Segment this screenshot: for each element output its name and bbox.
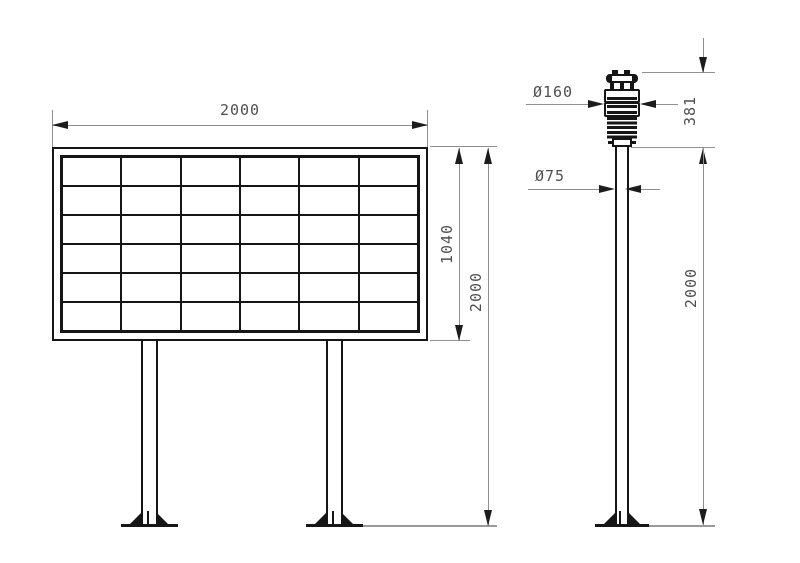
pole-diameter-label: Ø75 (528, 168, 572, 184)
arrowhead-left-icon (625, 185, 641, 193)
panel-cell (62, 215, 121, 244)
panel-cell (62, 244, 121, 273)
ground-line-front (363, 525, 497, 527)
gusset-icon (315, 512, 327, 524)
panel-cell (181, 186, 240, 215)
anchor-stub-left (147, 511, 149, 524)
panel-cell (299, 186, 358, 215)
board-height-label: 1040 (439, 214, 455, 274)
arrowhead-down-icon (455, 325, 463, 341)
gusset-icon (628, 512, 640, 524)
panel-cell (240, 273, 299, 302)
board-overall-height-label: 2000 (468, 262, 484, 322)
technical-drawing-canvas: 2000 1040 2000 (0, 0, 800, 563)
board-top-ext-line (430, 146, 497, 147)
panel-cell (240, 157, 299, 186)
panel-cell (62, 273, 121, 302)
pole-height-dim-line (703, 148, 704, 525)
board-width-dim-line (52, 125, 428, 126)
arrowhead-left-icon (640, 100, 656, 108)
panel-cell (240, 244, 299, 273)
panel-cell (359, 302, 418, 331)
board-leg-left (141, 341, 158, 524)
panel-cell (181, 157, 240, 186)
gusset-icon (156, 512, 168, 524)
panel-cell (240, 302, 299, 331)
board-width-label: 2000 (200, 102, 280, 118)
gusset-icon (341, 512, 353, 524)
sensor-height-label: 381 (682, 81, 698, 141)
panel-cell (240, 215, 299, 244)
pole-height-label: 2000 (683, 258, 699, 318)
panel-cell (62, 157, 121, 186)
sensor-cap-end (608, 76, 612, 81)
arrowhead-up-icon (455, 148, 463, 164)
board-overall-height-dim-line (488, 148, 489, 526)
panel-cell (359, 273, 418, 302)
sensor-body-lower (604, 102, 640, 117)
anchor-stub-sensor (619, 511, 621, 524)
panel-cell (299, 273, 358, 302)
board-height-dim-line (459, 148, 460, 341)
base-plate-left (121, 524, 178, 527)
solar-panel-cell-grid (60, 155, 420, 333)
arrowhead-down-icon (699, 509, 707, 525)
pole-diameter-tail (641, 189, 660, 190)
panel-cell (181, 215, 240, 244)
ground-line-side (649, 525, 715, 527)
sensor-diameter-tail (656, 104, 678, 105)
arrowhead-up-icon (484, 148, 492, 164)
panel-cell (121, 215, 180, 244)
panel-cell (359, 244, 418, 273)
neck-tick (632, 141, 636, 144)
anchor-stub-right (332, 511, 334, 524)
base-plate-right (306, 524, 363, 527)
arrowhead-left-icon (52, 121, 68, 129)
panel-cell (121, 302, 180, 331)
sensor-body-upper (604, 89, 640, 103)
sensor-band (607, 111, 637, 114)
arrowhead-right-icon (588, 100, 604, 108)
panel-cell (62, 186, 121, 215)
panel-cell (121, 244, 180, 273)
panel-cell (240, 186, 299, 215)
panel-cell (62, 302, 121, 331)
arrowhead-down-icon (699, 57, 707, 73)
panel-cell (299, 302, 358, 331)
panel-cell (121, 157, 180, 186)
radiation-shield-louvers (607, 117, 637, 139)
panel-cell (181, 244, 240, 273)
panel-cell (181, 273, 240, 302)
panel-cell (299, 244, 358, 273)
sensor-pole (615, 146, 629, 524)
arrowhead-right-icon (412, 121, 428, 129)
arrowhead-right-icon (599, 185, 615, 193)
panel-cell (359, 157, 418, 186)
board-bottom-ext-line (430, 340, 470, 341)
panel-cell (359, 215, 418, 244)
sensor-diameter-label: Ø160 (526, 84, 580, 100)
panel-cell (299, 157, 358, 186)
gusset-icon (130, 512, 142, 524)
neck-tick (608, 141, 612, 144)
sensor-diameter-leader (526, 104, 588, 105)
panel-cell (299, 215, 358, 244)
panel-cell (359, 186, 418, 215)
panel-cell (121, 186, 180, 215)
sensor-band (607, 105, 637, 108)
panel-cell (181, 302, 240, 331)
sensor-band (607, 97, 637, 100)
arrowhead-down-icon (484, 510, 492, 526)
panel-cell (121, 273, 180, 302)
sensor-cap-end (632, 76, 636, 81)
gusset-icon (604, 512, 616, 524)
board-leg-right (326, 341, 343, 524)
pole-diameter-leader (528, 189, 599, 190)
base-plate-sensor (595, 524, 649, 527)
